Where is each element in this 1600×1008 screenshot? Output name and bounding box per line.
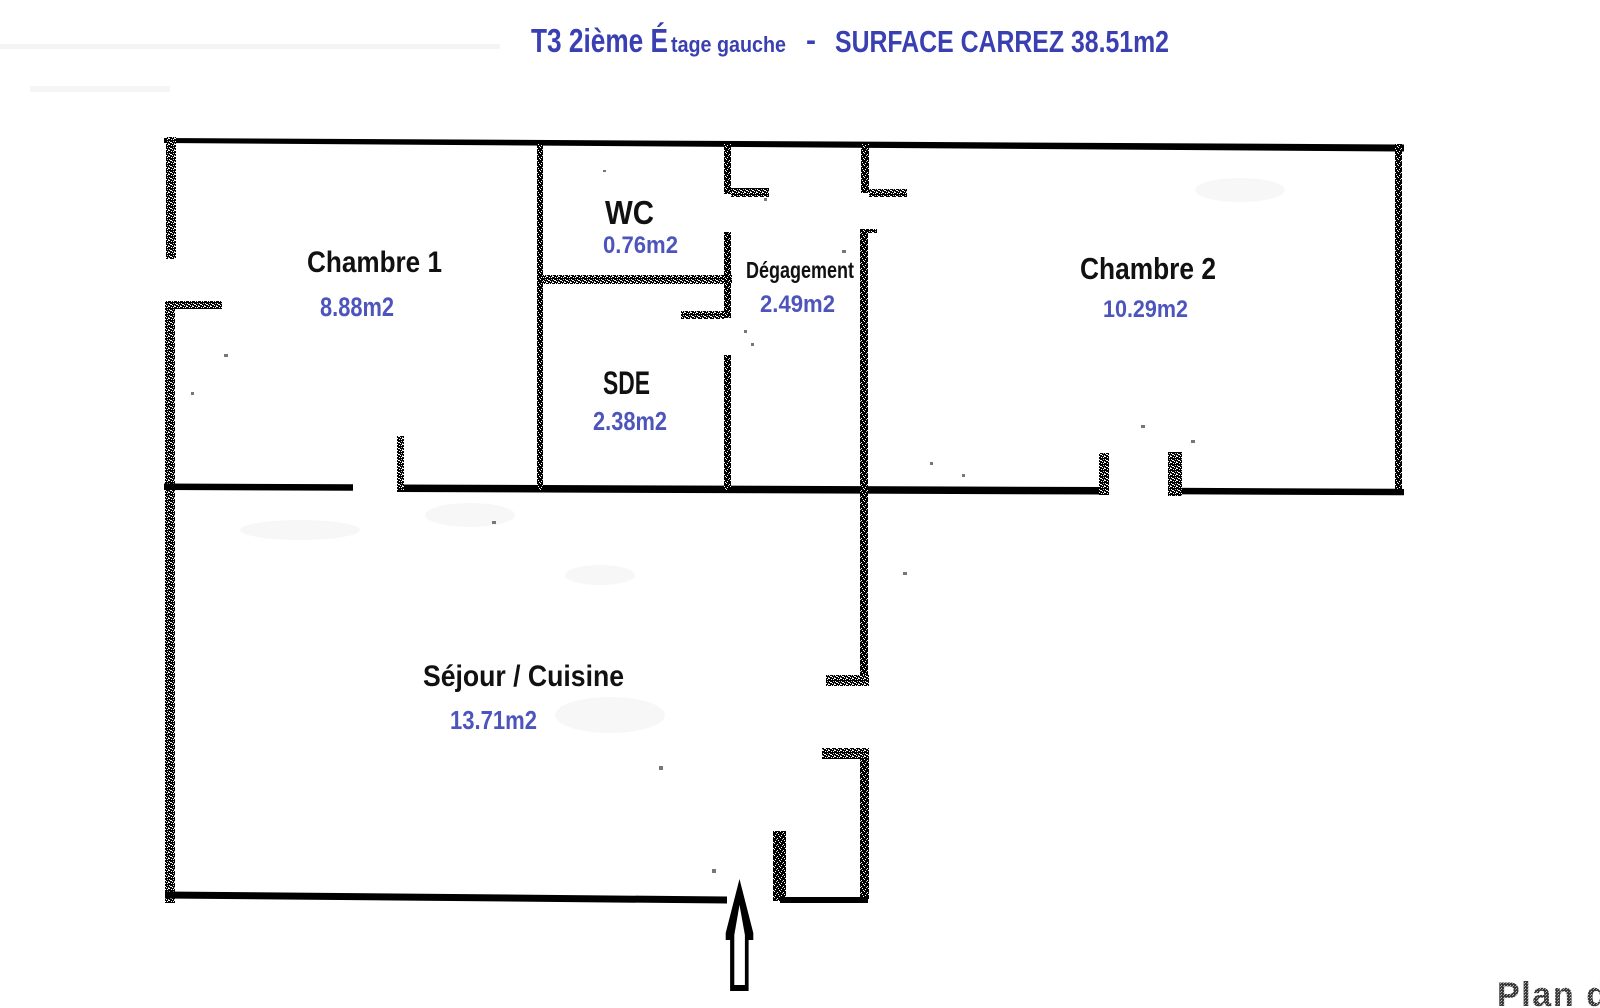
svg-text:SURFACE CARREZ 38.51m2: SURFACE CARREZ 38.51m2	[835, 24, 1169, 59]
svg-text:T3 2ième É: T3 2ième É	[531, 22, 668, 59]
svg-text:Séjour / Cuisine: Séjour / Cuisine	[423, 660, 624, 693]
svg-text:0.76m2: 0.76m2	[603, 232, 678, 259]
svg-text:8.88m2: 8.88m2	[320, 292, 394, 322]
svg-text:2.38m2: 2.38m2	[593, 406, 667, 436]
svg-text:tage gauche: tage gauche	[671, 32, 786, 57]
svg-text:SDE: SDE	[603, 365, 650, 401]
svg-text:2.49m2: 2.49m2	[760, 291, 835, 318]
svg-text:-: -	[806, 24, 816, 57]
svg-text:Dégagement: Dégagement	[746, 257, 854, 283]
svg-text:13.71m2: 13.71m2	[450, 705, 537, 735]
svg-text:WC: WC	[605, 194, 654, 231]
svg-text:Chambre 2: Chambre 2	[1080, 251, 1216, 286]
svg-text:Chambre 1: Chambre 1	[307, 246, 442, 279]
svg-text:10.29m2: 10.29m2	[1103, 296, 1188, 323]
svg-text:Plan d: Plan d	[1497, 976, 1600, 1008]
